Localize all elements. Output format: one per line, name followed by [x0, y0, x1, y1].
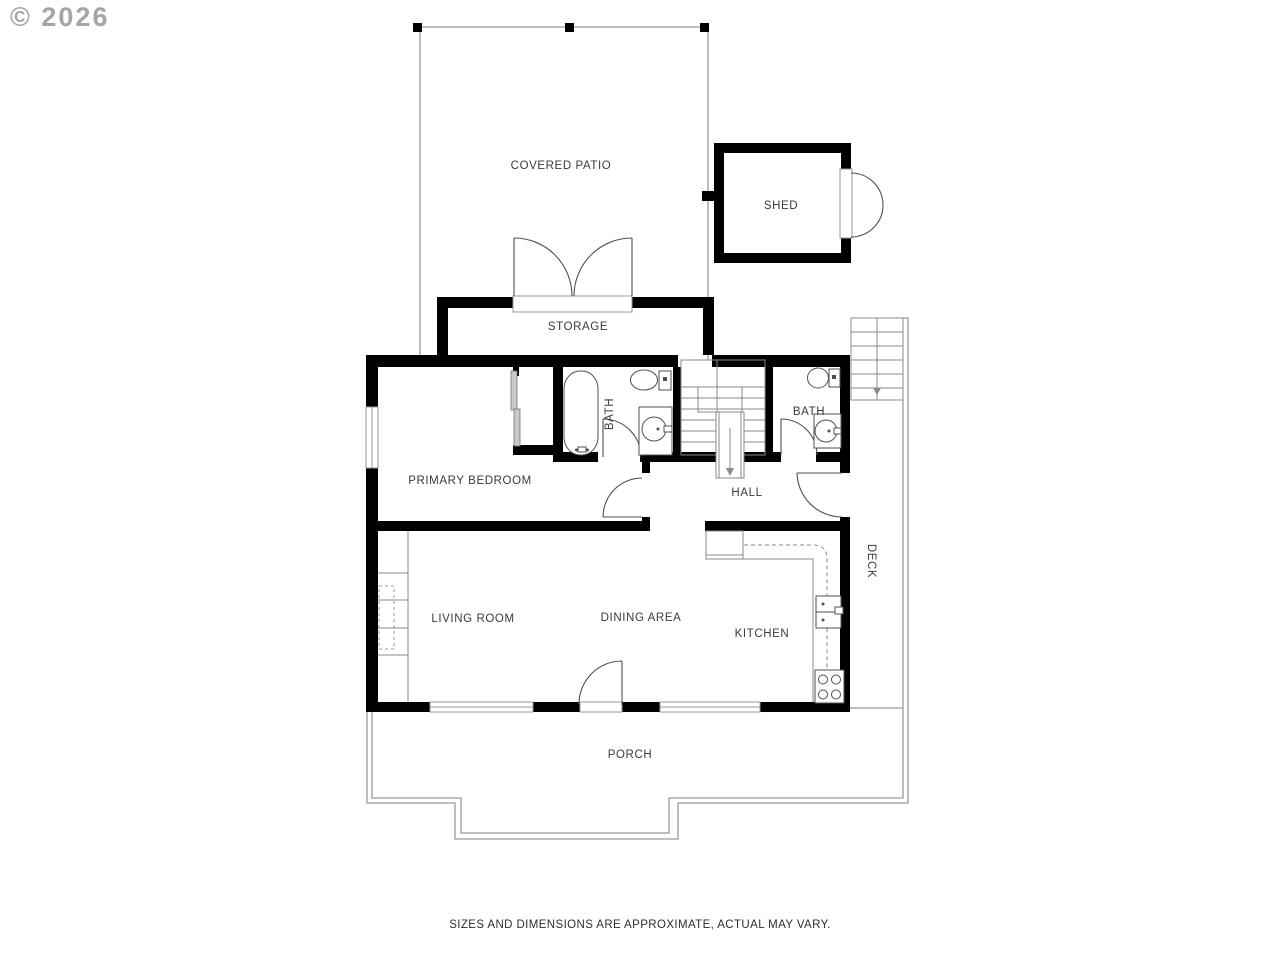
room-label-kitchen: KITCHEN	[735, 628, 790, 640]
sink-vanity-icon	[814, 414, 841, 448]
kitchen-fixtures	[706, 531, 844, 703]
room-label-dining-area: DINING AREA	[601, 612, 682, 624]
room-label-shed: SHED	[764, 200, 798, 212]
shed-double-door	[840, 169, 883, 238]
patio-post	[565, 23, 574, 32]
bedroom-window	[366, 407, 378, 468]
bath1-fixtures	[564, 370, 672, 455]
floor-plan-page: COVERED PATIO SHED STORAGE PRIMARY BEDRO…	[0, 0, 1280, 960]
bathtub-icon	[564, 371, 598, 455]
builtin-dashed-outline	[379, 586, 394, 649]
refrigerator-icon	[706, 531, 743, 559]
room-label-deck: DECK	[865, 544, 877, 578]
room-label-hall: HALL	[731, 487, 762, 499]
room-label-bath-2: BATH	[793, 406, 825, 418]
living-room-builtins	[378, 531, 408, 702]
dining-window	[660, 702, 760, 712]
sink-vanity-icon	[639, 407, 672, 455]
patio-door-sill	[513, 296, 632, 312]
room-label-storage: STORAGE	[548, 321, 608, 333]
room-label-porch: PORCH	[608, 749, 653, 761]
front-door	[579, 661, 622, 705]
living-room-window	[430, 702, 533, 712]
deck-door	[797, 473, 842, 517]
toilet-icon	[808, 368, 841, 388]
room-label-covered-patio: COVERED PATIO	[511, 160, 612, 172]
deck-stairs-down-arrow	[873, 388, 881, 395]
kitchen-sink-icon	[816, 596, 843, 628]
room-label-primary-bedroom: PRIMARY BEDROOM	[408, 475, 532, 487]
bedroom-door	[603, 478, 642, 517]
patio-shed-connector-wall	[702, 191, 714, 201]
closet-sliding-doors	[511, 371, 520, 446]
patio-french-doors	[514, 238, 632, 296]
copyright-watermark: © 2026	[10, 2, 109, 33]
toilet-icon	[631, 370, 672, 390]
disclaimer-text: SIZES AND DIMENSIONS ARE APPROXIMATE, AC…	[0, 919, 1280, 931]
front-door-sill	[580, 702, 622, 712]
patio-post	[700, 23, 709, 32]
bath2-door	[781, 419, 817, 455]
room-label-bath-1: BATH	[604, 398, 616, 430]
stove-icon	[815, 670, 844, 703]
patio-post	[413, 23, 422, 32]
room-label-living-room: LIVING ROOM	[431, 613, 514, 625]
floor-plan-drawing	[0, 0, 1280, 960]
deck-stairs	[851, 318, 903, 400]
